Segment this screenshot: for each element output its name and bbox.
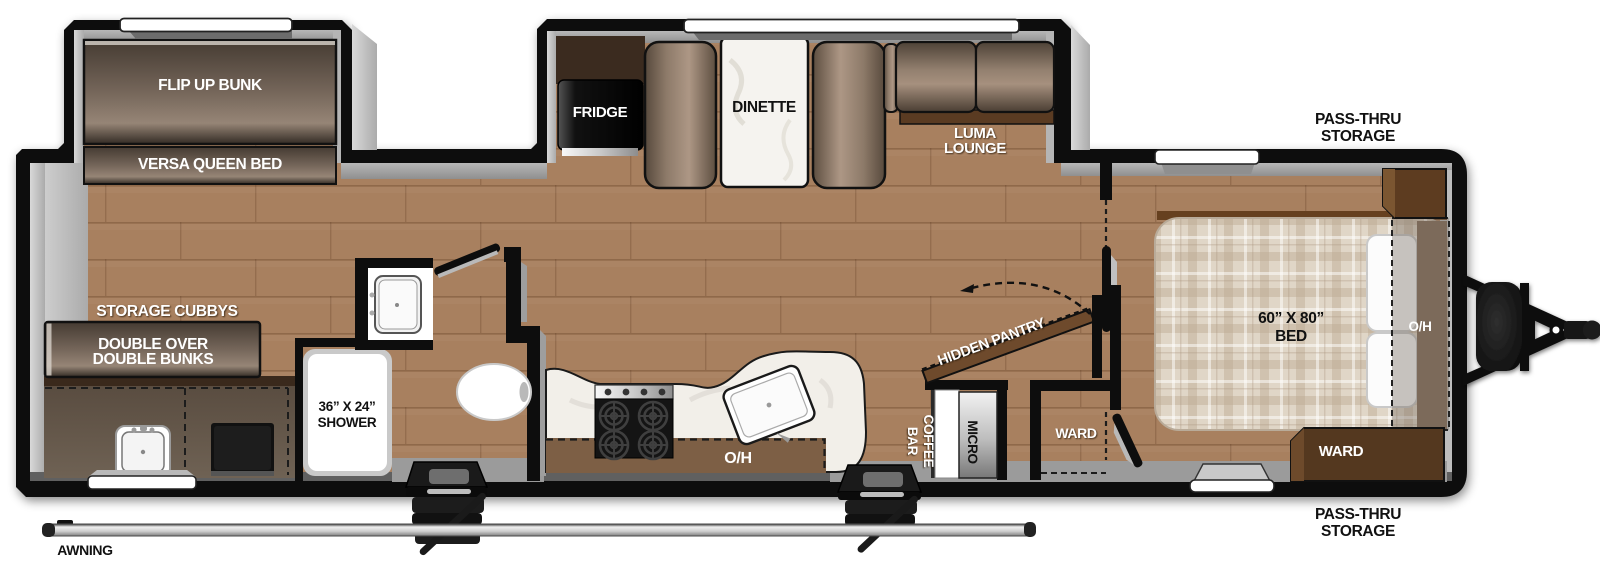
- svg-text:STORAGE CUBBYS: STORAGE CUBBYS: [96, 303, 237, 320]
- svg-text:FRIDGE: FRIDGE: [573, 104, 628, 121]
- svg-text:STORAGE: STORAGE: [1321, 128, 1395, 145]
- svg-text:FLIP UP BUNK: FLIP UP BUNK: [158, 77, 263, 94]
- svg-text:O/H: O/H: [724, 450, 751, 467]
- svg-text:36” X 24”: 36” X 24”: [319, 399, 376, 414]
- svg-text:LOUNGE: LOUNGE: [944, 140, 1006, 157]
- svg-text:60” X 80”: 60” X 80”: [1258, 310, 1324, 327]
- svg-text:STORAGE: STORAGE: [1321, 523, 1395, 540]
- svg-text:PASS-THRU: PASS-THRU: [1315, 506, 1401, 523]
- svg-text:COFFEE: COFFEE: [921, 415, 936, 468]
- svg-text:VERSA QUEEN BED: VERSA QUEEN BED: [138, 156, 282, 173]
- svg-text:MICRO: MICRO: [965, 420, 980, 463]
- svg-text:BAR: BAR: [905, 427, 920, 456]
- svg-text:O/H: O/H: [1409, 319, 1432, 334]
- svg-text:AWNING: AWNING: [57, 542, 113, 558]
- svg-text:DINETTE: DINETTE: [732, 99, 796, 116]
- svg-text:BED: BED: [1275, 328, 1307, 345]
- svg-text:WARD: WARD: [1319, 443, 1364, 460]
- svg-text:SHOWER: SHOWER: [318, 415, 377, 430]
- svg-text:DOUBLE BUNKS: DOUBLE BUNKS: [93, 351, 214, 368]
- svg-text:PASS-THRU: PASS-THRU: [1315, 111, 1401, 128]
- svg-text:WARD: WARD: [1055, 425, 1097, 441]
